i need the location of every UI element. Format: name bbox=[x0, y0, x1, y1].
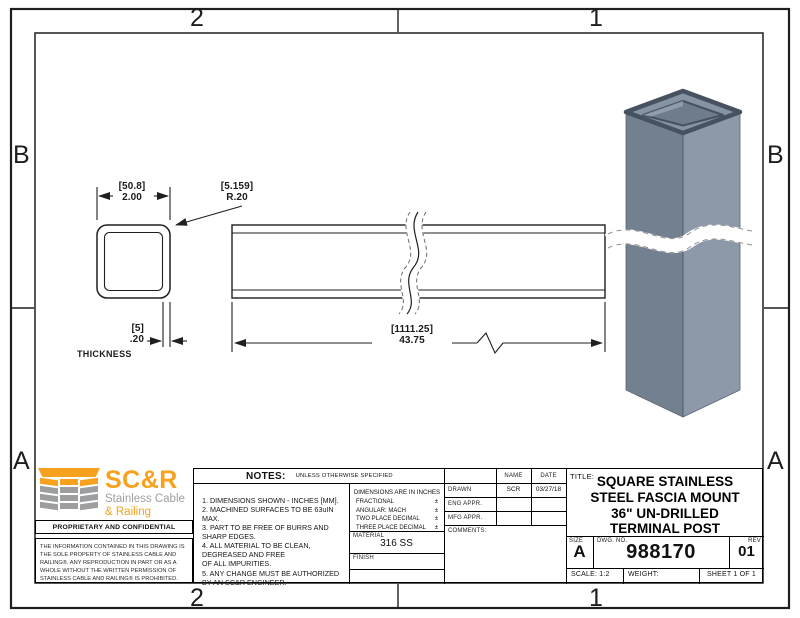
dwg-no-value: 988170 bbox=[593, 541, 729, 564]
thickness-label: THICKNESS bbox=[77, 349, 132, 359]
rev-value: 01 bbox=[729, 543, 764, 560]
thickness-dimension-lines bbox=[147, 302, 187, 347]
plus-minus: ± bbox=[435, 516, 438, 522]
approvals-date-header: DATE bbox=[531, 473, 566, 479]
material-value: 316 SS bbox=[350, 538, 443, 549]
side-view bbox=[232, 212, 605, 314]
sheet-value: SHEET 1 OF 1 bbox=[699, 571, 764, 578]
radius-dim-in: R.20 bbox=[208, 192, 266, 203]
thickness-dim-in: .20 bbox=[104, 334, 144, 345]
proprietary-heading: PROPRIETARY AND CONFIDENTIAL bbox=[35, 520, 193, 534]
comments-label: COMMENTS: bbox=[448, 528, 486, 534]
logo-tagline-2: & Railing bbox=[105, 507, 185, 519]
width-dim-in: 2.00 bbox=[100, 192, 164, 203]
zone-left-bottom: A bbox=[13, 449, 30, 474]
length-dim-in: 43.75 bbox=[375, 335, 449, 346]
width-dim-mm: [50.8] bbox=[100, 181, 164, 192]
proprietary-disclaimer: THE INFORMATION CONTAINED IN THIS DRAWIN… bbox=[35, 538, 193, 583]
tolerance-row: THREE PLACE DECIMAL ± bbox=[356, 525, 438, 531]
notes-qualifier: UNLESS OTHERWISE SPECIFIED bbox=[296, 473, 393, 479]
scale-value: SCALE: 1:2 bbox=[571, 571, 610, 578]
notes-body: 1. DIMENSIONS SHOWN - INCHES [MM]. 2. MA… bbox=[202, 496, 346, 587]
divider bbox=[349, 531, 444, 532]
thickness-dim-mm: [5] bbox=[104, 323, 144, 334]
width-dimension: [50.8] 2.00 bbox=[100, 181, 164, 203]
weight-label: WEIGHT: bbox=[628, 571, 659, 578]
notes-heading: NOTES: bbox=[246, 471, 286, 482]
notes-header: NOTES: UNLESS OTHERWISE SPECIFIED bbox=[194, 469, 444, 483]
zone-left-top: B bbox=[13, 143, 30, 168]
logo-tagline-1: Stainless Cable bbox=[105, 494, 185, 506]
plus-minus: ± bbox=[435, 525, 438, 531]
divider bbox=[444, 497, 566, 498]
railing-icon-center-panel bbox=[60, 479, 78, 511]
radius-dim-mm: [5.159] bbox=[208, 181, 266, 192]
length-dimension: [1111.25] 43.75 bbox=[375, 324, 449, 346]
divider bbox=[444, 511, 566, 512]
drawing-title: SQUARE STAINLESS STEEL FASCIA MOUNT 36" … bbox=[566, 474, 764, 537]
divider bbox=[444, 525, 566, 526]
drawn-date: 03/27/18 bbox=[531, 486, 566, 493]
size-value: A bbox=[566, 542, 593, 562]
tolerance-heading: DIMENSIONS ARE IN INCHES bbox=[351, 489, 443, 496]
tolerance-row: TWO PLACE DECIMAL ± bbox=[356, 516, 438, 522]
logo-text: SC&R Stainless Cable & Railing bbox=[105, 468, 185, 518]
zone-bottom-right: 1 bbox=[589, 586, 603, 611]
divider bbox=[444, 469, 445, 584]
company-logo: SC&R Stainless Cable & Railing bbox=[38, 468, 192, 518]
radius-dimension: [5.159] R.20 bbox=[208, 181, 266, 203]
title-block: NOTES: UNLESS OTHERWISE SPECIFIED 1. DIM… bbox=[193, 468, 763, 583]
thickness-dimension: [5] .20 bbox=[104, 323, 144, 345]
tolerance-label: TWO PLACE DECIMAL bbox=[356, 516, 420, 522]
tolerance-row: ANGULAR: MACH ± bbox=[356, 508, 438, 514]
plus-minus: ± bbox=[435, 508, 438, 514]
divider bbox=[623, 568, 624, 584]
zone-top-left: 2 bbox=[190, 6, 204, 31]
railing-icon bbox=[38, 468, 100, 518]
divider bbox=[194, 483, 444, 484]
cross-section-view bbox=[97, 225, 170, 298]
drawn-label: DRAWN bbox=[448, 487, 471, 493]
length-dim-mm: [1111.25] bbox=[375, 324, 449, 335]
railing-icon-right-panel bbox=[80, 478, 98, 513]
zone-right-bottom: A bbox=[767, 449, 784, 474]
eng-appr-label: ENG APPR. bbox=[448, 501, 482, 507]
zone-right-top: B bbox=[767, 143, 784, 168]
tolerance-label: THREE PLACE DECIMAL bbox=[356, 525, 426, 531]
drawn-name: SCR bbox=[496, 486, 531, 493]
tolerance-label: FRACTIONAL bbox=[356, 499, 394, 505]
railing-icon-left-panel bbox=[40, 478, 58, 513]
divider bbox=[566, 568, 764, 569]
finish-label: FINISH bbox=[353, 555, 374, 561]
tolerance-label: ANGULAR: MACH bbox=[356, 508, 406, 514]
mfg-appr-label: MFG APPR. bbox=[448, 515, 482, 521]
divider bbox=[349, 553, 444, 554]
tolerance-row: FRACTIONAL ± bbox=[356, 499, 438, 505]
railing-icon-handrail bbox=[38, 468, 100, 477]
plus-minus: ± bbox=[435, 499, 438, 505]
zone-top-right: 1 bbox=[589, 6, 603, 31]
zone-bottom-left: 2 bbox=[190, 586, 204, 611]
drawing-sheet: { "zones": { "top_left": "2", "top_right… bbox=[0, 0, 800, 618]
divider bbox=[566, 536, 764, 537]
logo-brand: SC&R bbox=[105, 468, 185, 493]
divider bbox=[444, 483, 566, 484]
isometric-post-render bbox=[608, 91, 752, 417]
radius-leader-line bbox=[176, 206, 242, 225]
divider bbox=[349, 569, 444, 570]
approvals-name-header: NAME bbox=[496, 473, 531, 479]
